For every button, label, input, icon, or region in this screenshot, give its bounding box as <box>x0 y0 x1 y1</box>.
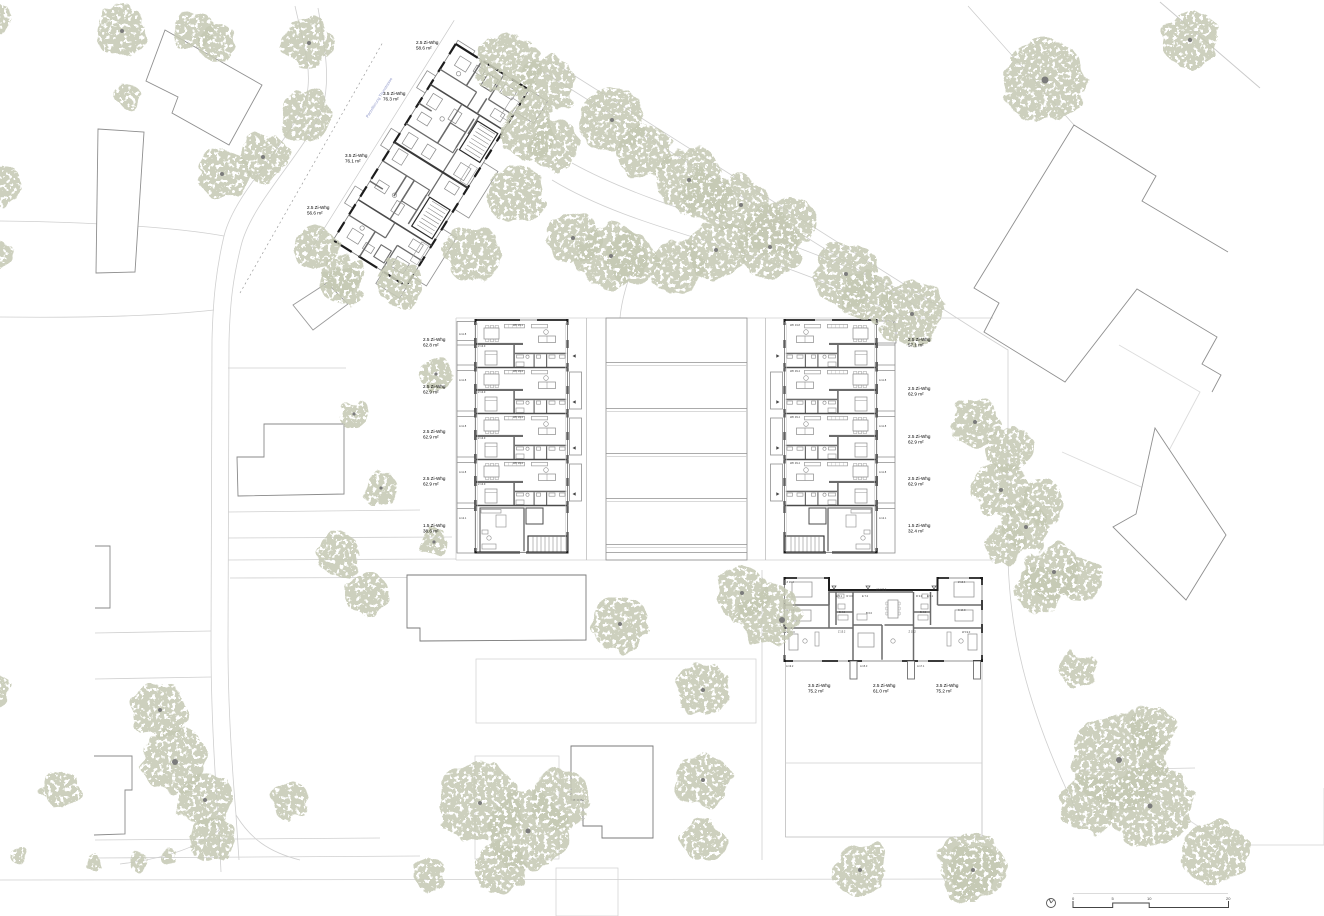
svg-text:E 5.1: E 5.1 <box>927 594 934 598</box>
svg-text:3.5 Zi-Whg: 3.5 Zi-Whg <box>383 91 406 96</box>
svg-text:56.6 m²: 56.6 m² <box>307 211 323 216</box>
svg-text:B 4.0: B 4.0 <box>839 610 846 614</box>
svg-text:61.0 m²: 61.0 m² <box>873 689 889 694</box>
svg-text:62.9 m²: 62.9 m² <box>908 440 924 445</box>
svg-text:Z 15.2: Z 15.2 <box>909 630 917 634</box>
svg-text:Z 16.4: Z 16.4 <box>787 580 795 584</box>
svg-text:WK 39.4: WK 39.4 <box>513 415 524 419</box>
svg-text:62.9 m²: 62.9 m² <box>908 392 924 397</box>
svg-text:Z 13.9: Z 13.9 <box>478 390 486 394</box>
svg-text:Z 13.9: Z 13.9 <box>478 344 486 348</box>
svg-text:2.5 Zi-Whg: 2.5 Zi-Whg <box>908 434 931 439</box>
svg-text:A 11.8: A 11.8 <box>879 424 887 428</box>
svg-text:WM 32.9: WM 32.9 <box>876 588 887 592</box>
svg-text:Z 13.9: Z 13.9 <box>478 482 486 486</box>
svg-text:A 12.1: A 12.1 <box>459 516 467 520</box>
svg-text:WK 39.1: WK 39.1 <box>513 323 524 327</box>
svg-text:3.5 Zi-Whg: 3.5 Zi-Whg <box>345 153 368 158</box>
svg-text:75.2 m²: 75.2 m² <box>808 689 824 694</box>
svg-text:2.5 Zi-Whg: 2.5 Zi-Whg <box>416 40 439 45</box>
svg-text:Z 15.2: Z 15.2 <box>838 630 846 634</box>
svg-text:R 3.0: R 3.0 <box>847 594 854 598</box>
svg-text:A 11.8: A 11.8 <box>879 378 887 382</box>
svg-text:A 11.8: A 11.8 <box>459 470 467 474</box>
svg-text:B 6.0: B 6.0 <box>866 611 873 615</box>
svg-text:2.5 Zi-Whg: 2.5 Zi-Whg <box>908 386 931 391</box>
svg-text:W 19.0: W 19.0 <box>962 630 971 634</box>
svg-text:76.3 m²: 76.3 m² <box>383 97 399 102</box>
svg-text:1.5 Zi-Whg: 1.5 Zi-Whg <box>423 523 446 528</box>
svg-text:2.5 Zi-Whg: 2.5 Zi-Whg <box>423 384 446 389</box>
svg-text:WK 39.4: WK 39.4 <box>513 461 524 465</box>
svg-text:Z 16.4: Z 16.4 <box>958 580 966 584</box>
svg-text:WK 39.4: WK 39.4 <box>790 415 801 419</box>
svg-text:20: 20 <box>1226 896 1231 901</box>
svg-text:E 7.2: E 7.2 <box>862 594 869 598</box>
svg-text:1.5 Zi-Whg: 1.5 Zi-Whg <box>908 523 931 528</box>
svg-text:A 17.1: A 17.1 <box>917 664 925 668</box>
svg-text:62.9 m²: 62.9 m² <box>423 435 439 440</box>
svg-text:A 12.1: A 12.1 <box>879 516 887 520</box>
svg-text:62.9 m²: 62.9 m² <box>423 482 439 487</box>
svg-text:62.8 m²: 62.8 m² <box>423 343 439 348</box>
svg-text:WK 39.4: WK 39.4 <box>513 369 524 373</box>
svg-text:57.1 m²: 57.1 m² <box>908 343 924 348</box>
svg-text:WK 39.4: WK 39.4 <box>790 461 801 465</box>
svg-text:A 11.8: A 11.8 <box>459 378 467 382</box>
svg-text:B 4.0: B 4.0 <box>920 610 927 614</box>
svg-text:2.5 Zi-Whg: 2.5 Zi-Whg <box>307 205 330 210</box>
svg-text:75.2 m²: 75.2 m² <box>936 689 952 694</box>
svg-text:2.5 Zi-Whg: 2.5 Zi-Whg <box>908 476 931 481</box>
svg-text:2.5 Zi-Whg: 2.5 Zi-Whg <box>423 337 446 342</box>
svg-text:3.5 Zi-Whg: 3.5 Zi-Whg <box>936 683 959 688</box>
svg-text:3.5 Zi-Whg: 3.5 Zi-Whg <box>808 683 831 688</box>
svg-text:WK 39.4: WK 39.4 <box>790 369 801 373</box>
svg-text:2.5 Zi-Whg: 2.5 Zi-Whg <box>908 337 931 342</box>
svg-text:A 11.8: A 11.8 <box>459 424 467 428</box>
svg-text:A 11.8: A 11.8 <box>879 470 887 474</box>
svg-text:R 3.0: R 3.0 <box>916 594 923 598</box>
svg-text:WK 33.8: WK 33.8 <box>790 323 801 327</box>
svg-text:38.6 m²: 38.6 m² <box>423 529 439 534</box>
svg-text:A 15.3: A 15.3 <box>860 664 868 668</box>
svg-text:2.5 Zi-Whg: 2.5 Zi-Whg <box>423 476 446 481</box>
svg-text:76.1 m²: 76.1 m² <box>345 159 361 164</box>
svg-text:K 14.9: K 14.9 <box>958 608 966 612</box>
svg-text:Z 13.9: Z 13.9 <box>478 436 486 440</box>
svg-text:2.5 Zi-Whg: 2.5 Zi-Whg <box>423 429 446 434</box>
svg-text:2.5 Zi-Whg: 2.5 Zi-Whg <box>873 683 896 688</box>
svg-text:62.9 m²: 62.9 m² <box>423 390 439 395</box>
svg-text:A 11.8: A 11.8 <box>459 332 467 336</box>
svg-text:62.9 m²: 62.9 m² <box>908 482 924 487</box>
svg-text:32.4 m²: 32.4 m² <box>908 529 924 534</box>
svg-text:10: 10 <box>1147 896 1152 901</box>
svg-text:E 5.1: E 5.1 <box>836 594 843 598</box>
svg-text:58.6 m²: 58.6 m² <box>416 46 432 51</box>
svg-text:A 19.2: A 19.2 <box>786 664 794 668</box>
